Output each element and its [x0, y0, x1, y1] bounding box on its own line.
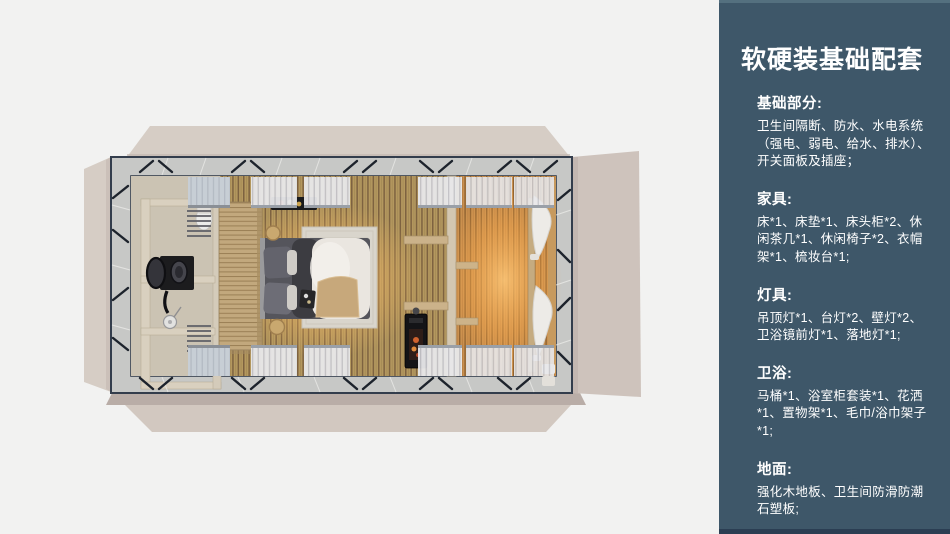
slat-group — [251, 345, 297, 376]
stove-pipe — [413, 308, 420, 315]
section-basics-body: 卫生间隔断、防水、水电系统（强电、弱电、给水、排水）、开关面板及插座； — [757, 118, 934, 171]
stove-flame1 — [413, 337, 419, 343]
bunk-wall-strip — [548, 180, 556, 372]
section-furniture-body: 床*1、床垫*1、床头柜*2、休闲茶几*1、休闲椅子*2、衣帽架*1、梳妆台*1… — [757, 214, 934, 267]
section-flooring-body: 强化木地板、卫生间防滑防潮石塑板; — [757, 484, 934, 519]
wardrobe — [219, 202, 262, 354]
floorplan-panel — [0, 0, 719, 534]
sidebar-title: 软硬装基础配套 — [741, 40, 934, 76]
bed — [260, 226, 370, 335]
section-bathroom-heading: 卫浴: — [757, 362, 934, 383]
section-furniture: 家具: 床*1、床垫*1、床头柜*2、休闲茶几*1、休闲椅子*2、衣帽架*1、梳… — [757, 188, 934, 267]
shower-head-center — [168, 320, 172, 324]
section-basics: 基础部分: 卫生间隔断、防水、水电系统（强电、弱电、给水、排水）、开关面板及插座… — [757, 92, 934, 171]
decor-item-amber — [297, 202, 302, 207]
section-lighting-heading: 灯具: — [757, 284, 934, 305]
section-flooring-heading: 地面: — [757, 458, 934, 479]
slat-group — [304, 345, 350, 376]
pillow-accent-lower — [287, 285, 297, 310]
slat-group — [514, 177, 554, 208]
slat-group — [466, 177, 512, 208]
stove-vent — [409, 318, 423, 323]
slat-group — [418, 177, 462, 208]
wardrobe-body — [219, 202, 262, 350]
flap-top — [127, 126, 570, 157]
slat-group — [188, 345, 230, 376]
partition-shelf-lower — [404, 302, 448, 310]
right-shelf-lower — [456, 318, 478, 325]
floorplan-illustration — [0, 0, 719, 534]
vanity-sink-basin — [175, 266, 183, 278]
section-lighting-body: 吊顶灯*1、台灯*2、壁灯*2、卫浴镜前灯*1、落地灯*1; — [757, 310, 934, 345]
bunk-pillow2 — [542, 376, 555, 386]
bed-tan-blanket — [316, 276, 359, 317]
section-furniture-heading: 家具: — [757, 188, 934, 209]
slide: 软硬装基础配套 基础部分: 卫生间隔断、防水、水电系统（强电、弱电、给水、排水）… — [0, 0, 950, 534]
curtain-tie-upper — [530, 254, 539, 260]
section-flooring: 地面: 强化木地板、卫生间防滑防潮石塑板; — [757, 458, 934, 519]
slat-group — [188, 177, 230, 208]
bed-tray-cup2 — [307, 300, 311, 304]
rattan-pouf-top — [266, 226, 280, 240]
bed-tray-cup — [304, 294, 308, 298]
flap-right — [572, 151, 641, 397]
sidebar: 软硬装基础配套 基础部分: 卫生间隔断、防水、水电系统（强电、弱电、给水、排水）… — [719, 0, 950, 534]
flap-bottom — [125, 405, 571, 432]
bathroom-wall-left — [141, 199, 150, 389]
section-bathroom: 卫浴: 马桶*1、浴室柜套装*1、花洒*1、置物架*1、毛巾/浴巾架子*1; — [757, 362, 934, 441]
section-bathroom-body: 马桶*1、浴室柜套装*1、花洒*1、置物架*1、毛巾/浴巾架子*1; — [757, 388, 934, 441]
vanity-mirror — [147, 258, 165, 288]
bed-tray — [299, 289, 316, 308]
partition-shelf-upper — [404, 236, 448, 244]
pillow-accent-upper — [287, 250, 297, 275]
section-basics-heading: 基础部分: — [757, 92, 934, 113]
slat-group — [514, 345, 554, 376]
slat-group — [418, 345, 462, 376]
stove-flame2 — [412, 347, 417, 352]
section-lighting: 灯具: 吊顶灯*1、台灯*2、壁灯*2、卫浴镜前灯*1、落地灯*1; — [757, 284, 934, 345]
right-shelf-upper — [456, 262, 478, 269]
slat-group — [304, 177, 350, 208]
slat-group — [251, 177, 297, 208]
flap-bottom-rim — [106, 393, 586, 405]
slat-group — [466, 345, 512, 376]
rattan-pouf-bottom — [270, 320, 285, 335]
